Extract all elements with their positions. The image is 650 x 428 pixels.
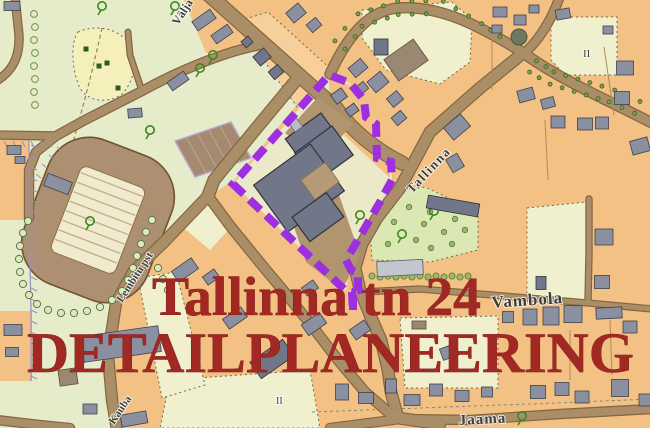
svg-text:Tallinna tn 24: Tallinna tn 24 (152, 266, 481, 327)
svg-text:DETAILPLANEERING: DETAILPLANEERING (27, 322, 634, 385)
svg-text:Jaama: Jaama (458, 411, 506, 428)
svg-text:II: II (276, 396, 283, 407)
svg-text:II: II (583, 48, 591, 60)
